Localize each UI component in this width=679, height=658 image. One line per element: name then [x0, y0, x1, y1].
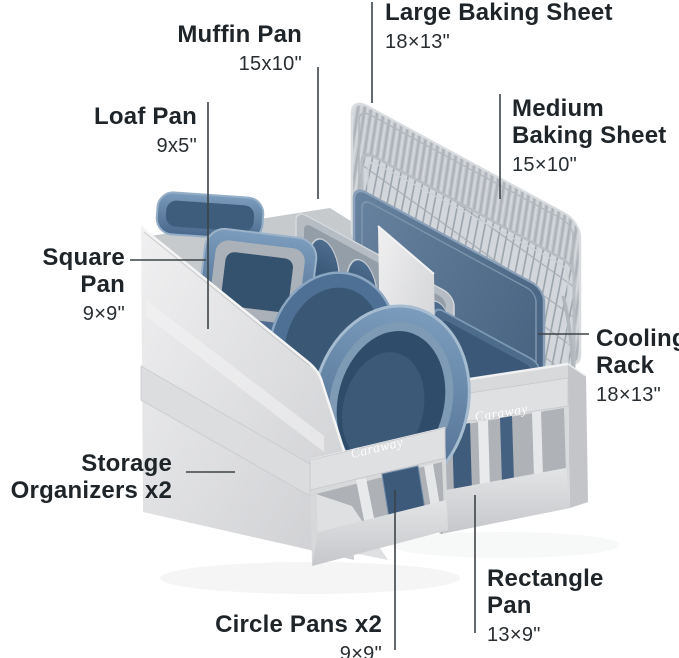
label-cooling-rack-name: Cooling Rack: [596, 326, 679, 380]
ground-shadow-left: [160, 562, 460, 594]
label-rectangle-pan-name: Rectangle Pan: [487, 566, 604, 620]
label-large-baking-sheet-dim: 18×13": [385, 30, 613, 54]
label-medium-baking-sheet: Medium Baking Sheet 15×10": [512, 96, 666, 177]
label-loaf-pan-name: Loaf Pan: [94, 104, 197, 131]
label-square-pan-dim: 9×9": [0, 302, 125, 326]
label-storage-organizers-name: Storage Organizers x2: [11, 451, 172, 505]
label-medium-baking-sheet-dim: 15×10": [512, 153, 666, 177]
label-square-pan-name: Square Pan: [0, 245, 125, 299]
label-muffin-pan-dim: 15x10": [177, 52, 302, 76]
label-large-baking-sheet-name: Large Baking Sheet: [385, 0, 613, 27]
label-square-pan: Square Pan 9×9": [0, 245, 125, 326]
label-rectangle-pan-dim: 13×9": [487, 623, 604, 647]
label-cooling-rack-dim: 18×13": [596, 383, 679, 407]
label-muffin-pan-name: Muffin Pan: [177, 22, 302, 49]
label-loaf-pan: Loaf Pan 9x5": [94, 104, 197, 158]
label-circle-pans: Circle Pans x2 9×9": [215, 612, 382, 658]
label-loaf-pan-dim: 9x5": [94, 134, 197, 158]
label-muffin-pan: Muffin Pan 15x10": [177, 22, 302, 76]
label-rectangle-pan: Rectangle Pan 13×9": [487, 566, 604, 647]
label-large-baking-sheet: Large Baking Sheet 18×13": [385, 0, 613, 54]
label-medium-baking-sheet-name: Medium Baking Sheet: [512, 96, 666, 150]
product-annotation-figure: Caraway: [0, 0, 679, 658]
label-circle-pans-name: Circle Pans x2: [215, 612, 382, 639]
label-cooling-rack: Cooling Rack 18×13": [596, 326, 679, 407]
label-storage-organizers: Storage Organizers x2: [11, 451, 172, 505]
label-circle-pans-dim: 9×9": [215, 642, 382, 658]
